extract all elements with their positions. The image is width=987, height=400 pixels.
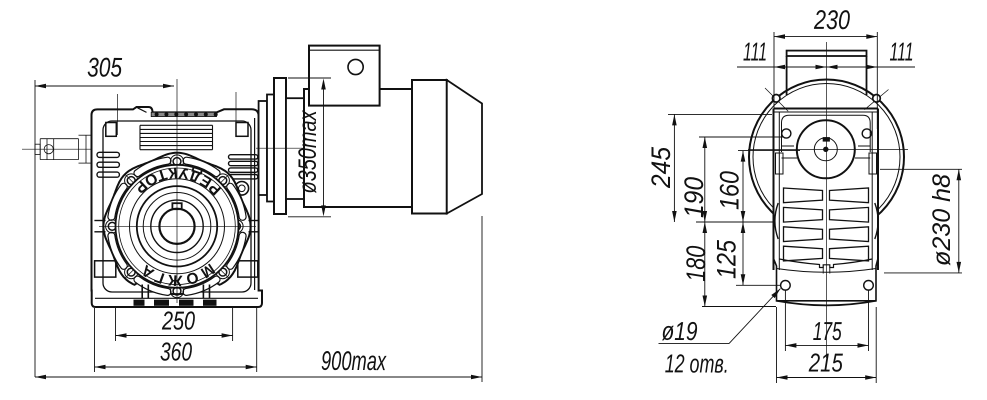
- svg-text:111: 111: [743, 36, 767, 66]
- svg-text:ø350max: ø350max: [294, 109, 322, 193]
- svg-text:305: 305: [87, 52, 123, 82]
- svg-text:180: 180: [681, 246, 711, 282]
- svg-text:250: 250: [161, 305, 195, 335]
- svg-text:175: 175: [813, 316, 842, 346]
- svg-text:160: 160: [715, 171, 745, 210]
- svg-text:111: 111: [889, 36, 913, 66]
- svg-text:230: 230: [813, 5, 850, 35]
- svg-text:190: 190: [679, 177, 709, 218]
- svg-text:ø230 h8: ø230 h8: [928, 174, 956, 266]
- svg-text:245: 245: [646, 146, 676, 189]
- svg-text:125: 125: [712, 239, 742, 279]
- svg-text:12 отв.: 12 отв.: [665, 348, 729, 378]
- svg-text:215: 215: [808, 347, 843, 377]
- svg-text:ø19: ø19: [661, 316, 697, 346]
- svg-text:900max: 900max: [321, 346, 387, 376]
- svg-text:360: 360: [160, 336, 192, 366]
